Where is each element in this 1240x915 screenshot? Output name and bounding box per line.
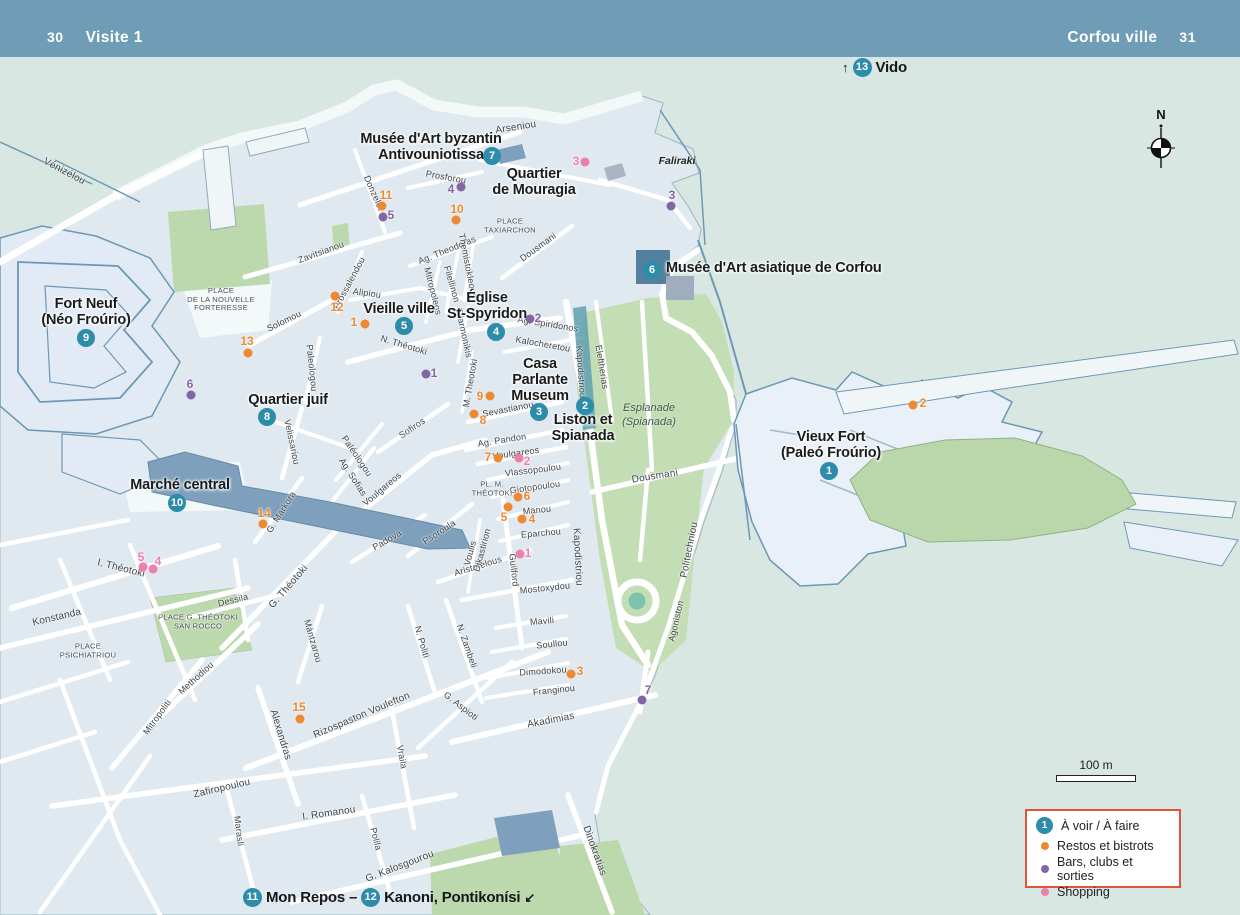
marker-dot (422, 370, 431, 379)
street-label: N. Politi (413, 625, 432, 659)
vido-label: Vido (876, 59, 907, 76)
place-label: PLACEDE LA NOUVELLEFORTERESSE (187, 287, 255, 313)
street-label: Politechniou (680, 521, 701, 579)
marker-dot (518, 515, 527, 524)
street-label: I. Romanou (302, 805, 357, 822)
north-arrow-icon: ↑ (842, 60, 849, 75)
marker-dot (526, 315, 535, 324)
page-number-right: 31 (1179, 29, 1196, 45)
place-label: PLACETAXIARCHON (484, 217, 536, 234)
street-label: Rizospaston Voulefton (312, 691, 411, 741)
header-title-right: Corfou ville (1067, 29, 1157, 47)
marker-dot (457, 183, 466, 192)
marker-number: 3 (669, 188, 676, 202)
street-label: Manou (522, 504, 551, 517)
poi-label: Quartierde Mouragia (492, 166, 575, 198)
marker-number: 2 (524, 454, 531, 468)
legend-restos-dot (1041, 842, 1049, 850)
street-label: G. Aspioti (442, 690, 480, 723)
marker-number: 1 (431, 366, 438, 380)
marker-number: 11 (380, 188, 393, 202)
kanoni-label: Kanoni, Pontikonísi (384, 889, 520, 906)
street-label: Kalocheretou (515, 334, 571, 353)
legend-bars-dot (1041, 865, 1049, 873)
marker-number: 12 (330, 300, 343, 314)
marker-number: 6 (524, 489, 531, 503)
marker-dot (515, 454, 524, 463)
street-label: Paleologou (305, 344, 320, 392)
street-label: Dousmani (518, 231, 558, 264)
marker-number: 15 (292, 700, 305, 714)
poi-circle-10: 10 (168, 494, 186, 512)
street-label: Vraila (395, 744, 409, 769)
poi-label: Vieille ville (363, 301, 434, 317)
marker-number: 7 (645, 683, 652, 697)
marker-number: 9 (477, 389, 484, 403)
street-label: Kapodistriou (570, 528, 583, 586)
marker-number: 2 (920, 396, 927, 410)
street-label: N. Zambeli (455, 623, 479, 669)
marker-number: 13 (240, 334, 253, 348)
marker-dot (452, 216, 461, 225)
marker-dot (259, 520, 268, 529)
marker-number: 7 (485, 450, 492, 464)
poi-label: CasaParlanteMuseum (511, 356, 569, 404)
marker-number: 4 (448, 182, 455, 196)
street-label: Dousmani (631, 468, 679, 485)
page-number-left: 30 (47, 29, 64, 45)
area-label: Faliraki (659, 154, 696, 168)
street-label: Franginou (532, 683, 575, 697)
marker-number: 3 (577, 664, 584, 678)
marker-number: 8 (480, 413, 487, 427)
poi-circle-6: 6 (643, 261, 661, 279)
marker-dot (187, 391, 196, 400)
poi-label: Quartier juif (248, 392, 328, 408)
street-label: Ag. Pandon (477, 431, 527, 449)
poi-label: Fort Neuf(Néo Froúrio) (41, 296, 130, 328)
marker-dot (361, 320, 370, 329)
legend-shopping-label: Shopping (1057, 885, 1110, 899)
marker-number: 4 (529, 512, 536, 526)
street-label: Padova (371, 528, 403, 553)
marker-dot (486, 392, 495, 401)
street-label: Vénizélou (41, 157, 86, 187)
place-label: PLACEPSICHIATRIOU (60, 642, 116, 659)
street-label: Methodiou (176, 660, 215, 697)
street-label: G. Théotoki (268, 563, 311, 610)
scale-bar-rule (1056, 775, 1136, 782)
marker-number: 1 (351, 315, 358, 329)
marker-number: 5 (501, 510, 508, 524)
marker-number: 5 (138, 550, 145, 564)
street-label: Kapodistriou (574, 345, 588, 398)
legend-bars-label: Bars, clubs et sorties (1057, 855, 1170, 883)
poi-circle-4: 4 (487, 323, 505, 341)
marker-dot (244, 349, 253, 358)
legend-see-do-label: À voir / À faire (1061, 819, 1140, 833)
street-label: Agoniston (666, 599, 685, 642)
street-label: Alexandras (268, 709, 293, 762)
street-label: Eleftherias (594, 344, 611, 390)
street-label: Alipiou (352, 286, 382, 300)
marker-number: 14 (257, 506, 270, 520)
marker-dot (514, 493, 523, 502)
marker-dot (494, 454, 503, 463)
legend-shopping-dot (1041, 888, 1049, 896)
mon-repos-label: Mon Repos – (266, 889, 357, 906)
marker-dot (378, 202, 387, 211)
place-label: PL. M.THÉOTOKI (472, 480, 513, 497)
street-label: Dimodokou (519, 664, 567, 677)
poi-label: Marché central (130, 477, 230, 493)
marker-number: 1 (525, 546, 532, 560)
marker-dot (379, 213, 388, 222)
marker-number: 3 (573, 154, 580, 168)
street-label: Mostoxydou (519, 580, 570, 595)
street-label: Mántzarou (302, 618, 324, 663)
street-label: Zafiropoulou (193, 778, 252, 801)
area-label: Esplanade(Spianada) (622, 401, 676, 429)
legend-restos-label: Restos et bistrots (1057, 839, 1154, 853)
poi-circle-2: 2 (576, 397, 594, 415)
street-label: Dessila (217, 591, 249, 608)
mon-repos-kanoni-link: 11 Mon Repos – 12 Kanoni, Pontikonísi ↙ (243, 888, 535, 907)
street-label: Sofiros (397, 416, 427, 441)
marker-number: 4 (155, 554, 162, 568)
poi-circle-3: 3 (530, 403, 548, 421)
street-label: Polila (368, 827, 383, 852)
street-label: G. Kalosgourou (364, 849, 435, 884)
street-label: Zavitsianou (297, 239, 346, 265)
street-label: Mitropoliti (141, 698, 173, 737)
compass-north-label: N (1156, 107, 1165, 122)
poi-label: Liston etSpianada (552, 412, 615, 444)
legend-see-do-circle: 1 (1036, 817, 1053, 834)
street-label: Akadimias (527, 712, 576, 731)
marker-number: 6 (187, 377, 194, 391)
poi-circle-1: 1 (820, 462, 838, 480)
vido-link: ↑ 13 Vido (842, 58, 907, 77)
poi-label: Musée d'Art asiatique de Corfou (666, 260, 882, 276)
street-label: Marasli (232, 815, 246, 846)
street-label: Mavili (530, 615, 555, 627)
poi-label: Vieux Fort(Paleó Froúrio) (781, 429, 881, 461)
poi-circle-13: 13 (853, 58, 872, 77)
marker-dot (567, 670, 576, 679)
street-label: Konstanda (32, 608, 83, 629)
marker-dot (470, 410, 479, 419)
map-legend: 1 À voir / À faire Restos et bistrots Ba… (1025, 809, 1181, 888)
poi-circle-12: 12 (361, 888, 380, 907)
compass-rose-icon: N (1144, 106, 1178, 174)
street-label: Solomou (265, 308, 303, 333)
street-label: Eparchou (521, 526, 562, 539)
marker-dot (296, 715, 305, 724)
place-label: PLACE G. THÉOTOKISAN ROCCO (158, 613, 238, 630)
poi-circle-5: 5 (395, 317, 413, 335)
south-arrow-icon: ↙ (524, 890, 535, 906)
marker-number: 10 (450, 202, 463, 216)
scale-label: 100 m (1052, 758, 1140, 772)
street-label: N. Théotoki (380, 333, 429, 357)
marker-dot (909, 401, 918, 410)
poi-label: ÉgliseSt-Spyridon (447, 290, 527, 322)
street-label: Dinokratias (580, 825, 607, 878)
guidebook-map-page: { "header": {"page_left":"30","title_lef… (0, 0, 1240, 915)
marker-number: 5 (388, 208, 395, 222)
poi-circle-11: 11 (243, 888, 262, 907)
street-label: Psoroula (421, 518, 458, 547)
marker-dot (667, 202, 676, 211)
street-label: Velissariou (282, 419, 301, 466)
marker-number: 2 (535, 311, 542, 325)
header-title-left: Visite 1 (86, 29, 143, 47)
poi-label: Musée d'Art byzantinAntivouniotissa (360, 131, 501, 163)
marker-dot (516, 550, 525, 559)
page-header: 30 Visite 1 Corfou ville 31 (0, 0, 1240, 57)
poi-circle-8: 8 (258, 408, 276, 426)
street-label: Soullou (536, 637, 568, 650)
compass: N (1144, 106, 1178, 179)
poi-circle-7: 7 (483, 147, 501, 165)
marker-dot (581, 158, 590, 167)
street-label: Vlassopoulou (504, 462, 561, 479)
scale-bar: 100 m (1052, 758, 1140, 782)
poi-circle-9: 9 (77, 329, 95, 347)
